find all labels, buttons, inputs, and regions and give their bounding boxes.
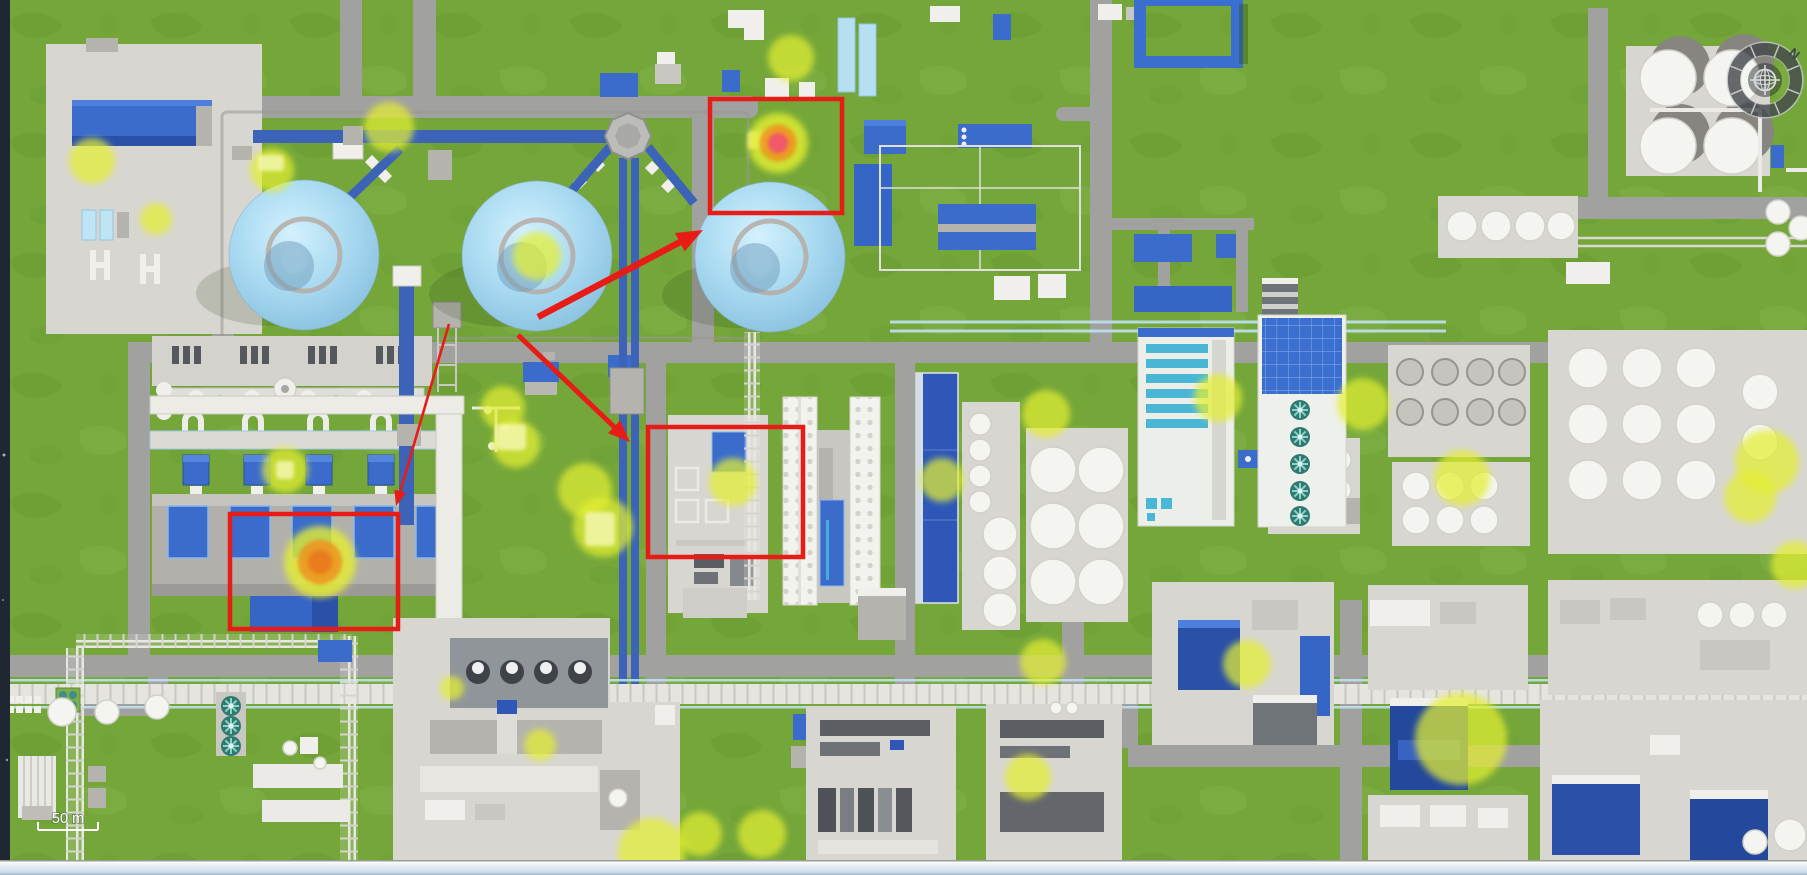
heat-marker: [920, 458, 964, 502]
heat-marker: [709, 458, 757, 506]
heat-marker: [768, 35, 814, 81]
heat-patch: [276, 461, 294, 479]
heat-marker: [140, 203, 172, 235]
compass-widget[interactable]: N: [1727, 42, 1803, 118]
heat-marker: [1005, 754, 1051, 800]
bottom-window-bar: [0, 860, 1807, 875]
heat-marker: [440, 676, 464, 700]
heat-marker: [1022, 390, 1070, 438]
heat-marker: [524, 729, 556, 761]
heat-marker: [513, 232, 561, 280]
heat-marker: [1194, 374, 1242, 422]
heat-patch: [258, 155, 284, 171]
heat-marker: [1724, 471, 1776, 523]
scale-bar-label: 50 m: [52, 811, 84, 827]
heat-marker: [364, 102, 414, 152]
heat-marker: [1415, 693, 1507, 785]
heat-patch: [496, 424, 526, 450]
plant-map-screen: N 50 m: [0, 0, 1807, 875]
heat-marker: [1434, 450, 1490, 506]
heat-marker: [69, 138, 115, 184]
app-background-strip: [0, 0, 10, 875]
alert-marker: [284, 526, 356, 598]
heat-marker: [678, 812, 722, 856]
alert-marker: [748, 113, 808, 173]
heat-marker: [1223, 640, 1271, 688]
map-viewport[interactable]: N 50 m: [0, 0, 1807, 875]
heat-patch: [585, 512, 615, 546]
heat-marker: [1337, 378, 1389, 430]
heat-marker: [738, 810, 786, 858]
heat-marker: [1020, 639, 1066, 685]
